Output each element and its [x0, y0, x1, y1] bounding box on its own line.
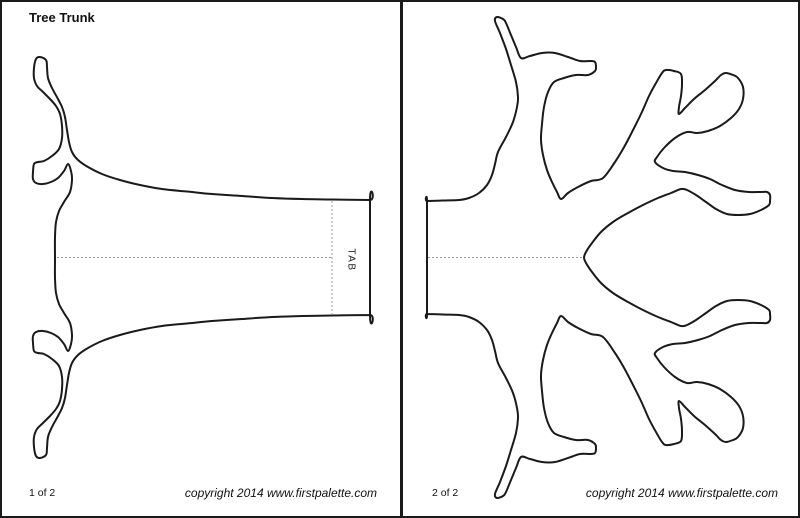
page-1: TAB Tree Trunk 1 of 2 copyright 2014 www… [2, 2, 400, 516]
copyright-text-2: copyright 2014 www.firstpalette.com [403, 486, 778, 500]
document-title: Tree Trunk [29, 10, 95, 25]
copyright-text-1: copyright 2014 www.firstpalette.com [2, 486, 377, 500]
branches-drawing [403, 2, 800, 518]
trunk-drawing: TAB [2, 2, 400, 518]
template-sheet: TAB Tree Trunk 1 of 2 copyright 2014 www… [0, 0, 800, 518]
tab-label: TAB [345, 248, 356, 271]
page-2: 2 of 2 copyright 2014 www.firstpalette.c… [403, 2, 800, 516]
